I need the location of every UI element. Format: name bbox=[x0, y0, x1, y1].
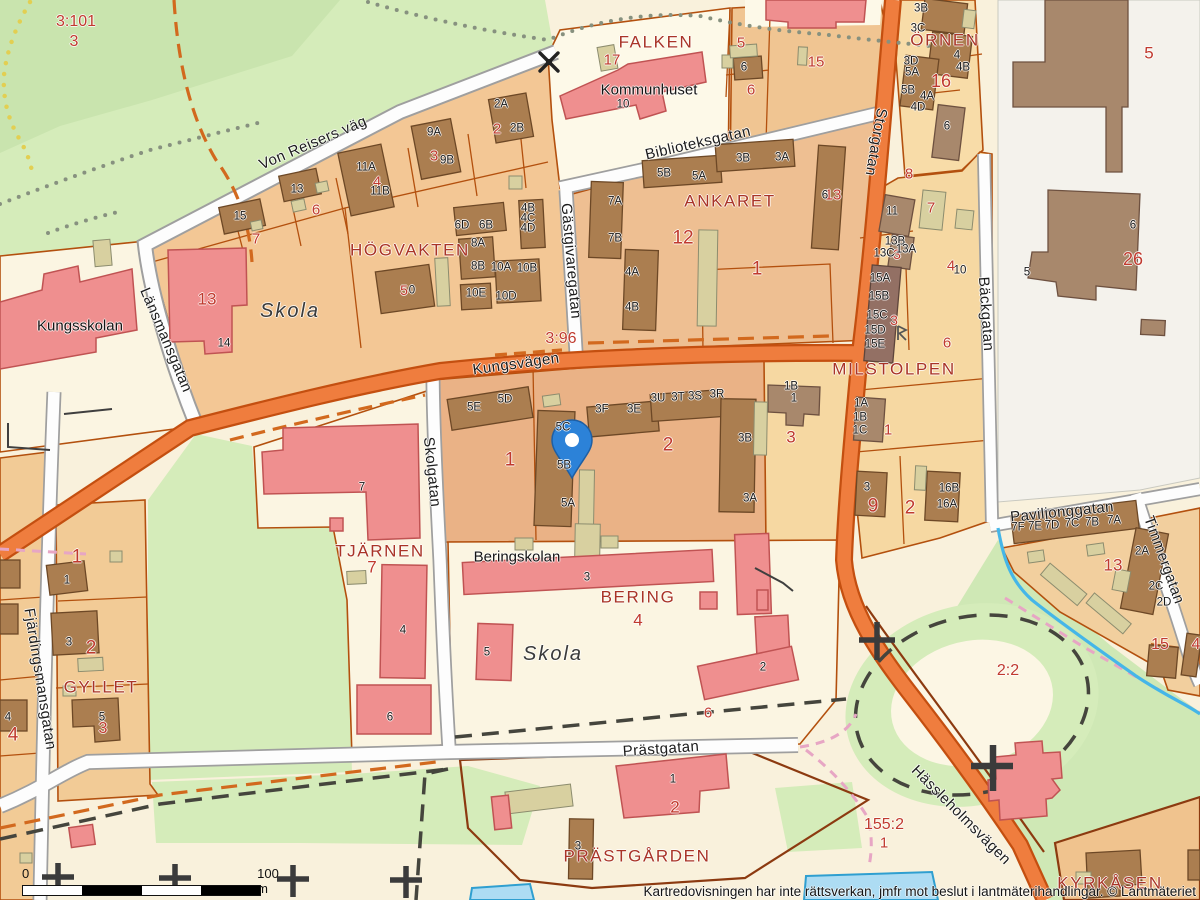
scale-zero-label: 0 bbox=[22, 866, 29, 881]
attribution-text: Kartredovisningen har inte rättsverkan, … bbox=[644, 884, 1196, 899]
scale-bar: 0 100 m bbox=[22, 866, 262, 898]
map-graphics bbox=[0, 0, 1200, 900]
scale-bar-graphic bbox=[22, 885, 261, 896]
map-canvas[interactable]: Von Reisers vägBiblioteksgatanGästgivare… bbox=[0, 0, 1200, 900]
